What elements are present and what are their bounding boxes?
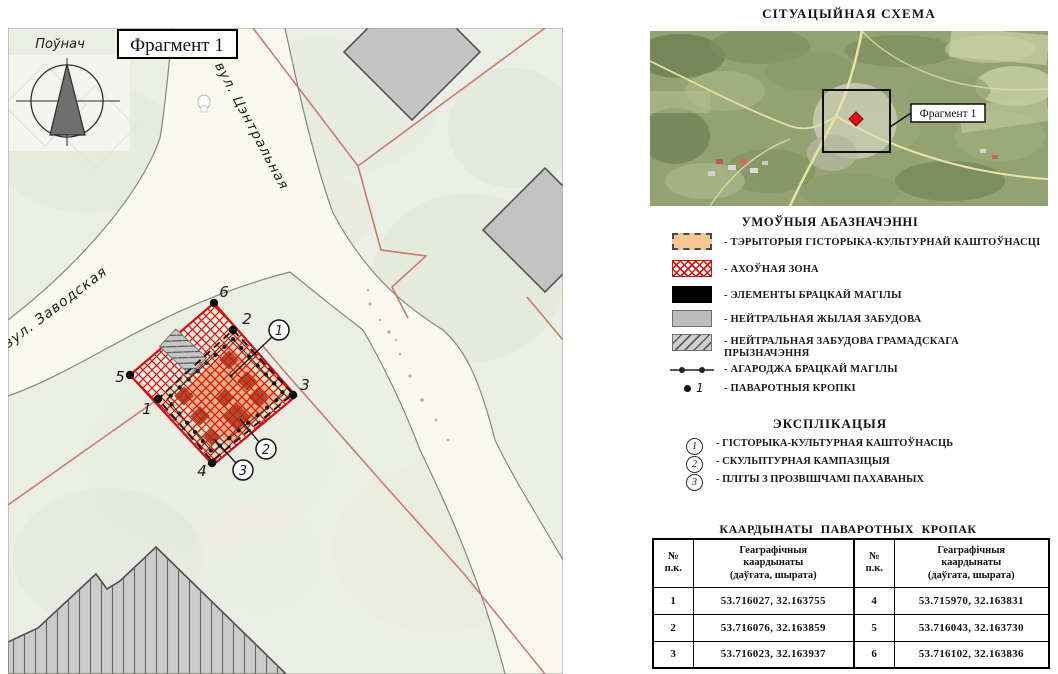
public-building-swatch-icon	[672, 334, 712, 351]
circled-number-1-icon: 1	[686, 438, 703, 455]
legend-label: - ЭЛЕМЕНТЫ БРАЦКАЙ МАГІЛЫ	[724, 290, 1046, 302]
point-number: 5	[854, 614, 894, 641]
point-coordinates: 53.716023, 32.163937	[693, 641, 854, 668]
point-number: 4	[854, 587, 894, 614]
legend-title: УМОЎНЫЯ АБАЗНАЧЭННІ	[630, 215, 1030, 230]
point-label-4: 4	[197, 462, 207, 480]
svg-text:1: 1	[275, 324, 283, 339]
point-dot-icon	[684, 385, 691, 392]
point-coordinates: 53.716102, 32.163836	[894, 641, 1049, 668]
table-row: 1 53.716027, 32.163755 4 53.715970, 32.1…	[653, 587, 1049, 614]
explication-label: - ПЛІТЫ З ПРОЗВІШЧАМІ ПАХАВАНЫХ	[716, 474, 1046, 485]
point-coordinates: 53.716043, 32.163730	[894, 614, 1049, 641]
point-coordinates: 53.716076, 32.163859	[693, 614, 854, 641]
residential-swatch-icon	[672, 310, 712, 327]
fragment-title-box: Фрагмент 1	[118, 30, 237, 58]
point-label-5: 5	[115, 368, 125, 386]
col-header-geo: Геаграфічныя каардынаты (даўгата, шырата…	[693, 539, 854, 587]
point-label-1: 1	[142, 400, 152, 418]
point-number-sample: 1	[696, 381, 704, 395]
circled-number-3-icon: 3	[686, 474, 703, 491]
compass: Поўнач	[8, 37, 136, 168]
protection-zone-swatch-icon	[672, 260, 712, 277]
grave-elements-swatch-icon	[672, 286, 712, 303]
legend-label: - АГАРОДЖА БРАЦКАЙ МАГІЛЫ	[724, 364, 1046, 376]
fragment-title: Фрагмент 1	[130, 35, 224, 56]
point-number: 2	[653, 614, 693, 641]
compass-label: Поўнач	[35, 37, 85, 52]
situation-fragment-label: Фрагмент 1	[920, 108, 977, 120]
legend-label: - НЕЙТРАЛЬНАЯ ЗАБУДОВА ГРАМАДСКАГА ПРЫЗН…	[724, 336, 1004, 359]
situation-fragment-label-box: Фрагмент 1	[911, 104, 985, 122]
explication-label: - ГІСТОРЫКА-КУЛЬТУРНАЯ КАШТОЎНАСЦЬ	[716, 438, 1046, 449]
point-number: 3	[653, 641, 693, 668]
point-label-6: 6	[219, 283, 229, 301]
explication-title: ЭКСПЛІКАЦЫЯ	[630, 416, 1030, 432]
territory-swatch-icon	[672, 233, 712, 250]
explication-label: - СКУЛЬПТУРНАЯ КАМПАЗІЦЫЯ	[716, 456, 1046, 467]
coords-table-header-row: № п.к. Геаграфічныя каардынаты (даўгата,…	[653, 539, 1049, 587]
fragment-map: Поўнач Фрагмент 1 вул. Цэнтральная вул. …	[8, 28, 563, 674]
explication-item-1: 1 - ГІСТОРЫКА-КУЛЬТУРНАЯ КАШТОЎНАСЦЬ	[686, 436, 703, 455]
legend-label: - ТЭРЫТОРЫЯ ГІСТОРЫКА-КУЛЬТУРНАЙ КАШТОЎН…	[724, 237, 1046, 249]
table-row: 3 53.716023, 32.163937 6 53.716102, 32.1…	[653, 641, 1049, 668]
fence-swatch-icon	[670, 365, 714, 375]
table-row: 2 53.716076, 32.163859 5 53.716043, 32.1…	[653, 614, 1049, 641]
point-label-3: 3	[300, 376, 310, 394]
svg-text:2: 2	[262, 443, 270, 458]
situation-map: Фрагмент 1	[650, 31, 1048, 206]
coords-table: № п.к. Геаграфічныя каардынаты (даўгата,…	[652, 538, 1050, 669]
svg-text:3: 3	[239, 464, 247, 479]
col-header-num: № п.к.	[854, 539, 894, 587]
col-header-geo: Геаграфічныя каардынаты (даўгата, шырата…	[894, 539, 1049, 587]
point-coordinates: 53.715970, 32.163831	[894, 587, 1049, 614]
circled-number-2-icon: 2	[686, 456, 703, 473]
point-number: 1	[653, 587, 693, 614]
drawing-sheet: Поўнач Фрагмент 1 вул. Цэнтральная вул. …	[0, 0, 1058, 674]
legend-label: - ПАВАРОТНЫЯ КРОПКІ	[724, 383, 1046, 395]
col-header-num: № п.к.	[653, 539, 693, 587]
legend-label: - НЕЙТРАЛЬНАЯ ЖЫЛАЯ ЗАБУДОВА	[724, 314, 1046, 326]
point-number: 6	[854, 641, 894, 668]
explication-item-3: 3 - ПЛІТЫ З ПРОЗВІШЧАМІ ПАХАВАНЫХ	[686, 472, 703, 491]
point-coordinates: 53.716027, 32.163755	[693, 587, 854, 614]
legend-label: - АХОЎНАЯ ЗОНА	[724, 264, 1046, 276]
situation-title: СІТУАЦЫЙНАЯ СХЕМА	[649, 6, 1049, 22]
coords-table-title: КААРДЫНАТЫ ПАВАРОТНЫХ КРОПАК	[648, 522, 1048, 537]
explication-item-2: 2 - СКУЛЬПТУРНАЯ КАМПАЗІЦЫЯ	[686, 454, 703, 473]
point-label-2: 2	[242, 310, 252, 328]
